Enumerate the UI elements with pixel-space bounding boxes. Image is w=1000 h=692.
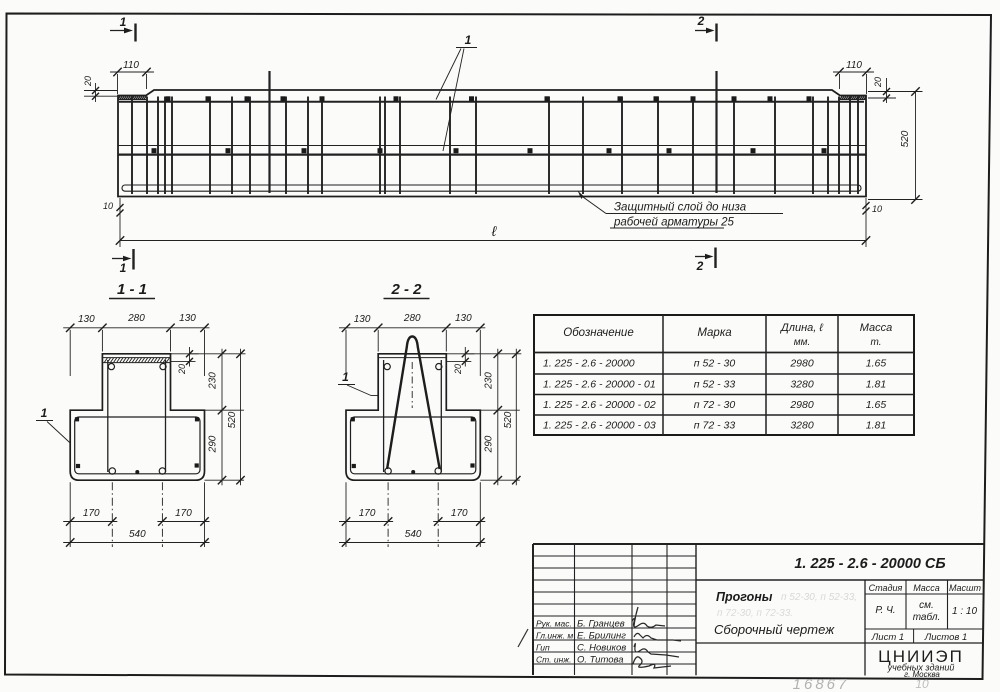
svg-text:16867: 16867 (793, 676, 850, 692)
svg-text:Ст. инж.: Ст. инж. (536, 655, 571, 665)
svg-text:130: 130 (179, 313, 196, 324)
svg-text:290: 290 (208, 435, 219, 453)
svg-text:1. 225 - 2.6 - 20000 - 02: 1. 225 - 2.6 - 20000 - 02 (543, 399, 656, 411)
svg-text:1. 225 - 2.6 - 20000: 1. 225 - 2.6 - 20000 (543, 358, 635, 370)
svg-text:110: 110 (846, 60, 862, 71)
svg-text:Е. Брилинг: Е. Брилинг (577, 631, 626, 642)
svg-text:3280: 3280 (790, 379, 814, 391)
svg-text:1.65: 1.65 (866, 399, 887, 411)
svg-text:10: 10 (103, 201, 113, 211)
svg-text:1.81: 1.81 (866, 379, 886, 391)
svg-text:Гл.инж. м: Гл.инж. м (536, 631, 573, 641)
svg-text:п 52 - 33: п 52 - 33 (694, 379, 736, 391)
svg-text:Сборочный чертеж: Сборочный чертеж (714, 622, 835, 637)
svg-text:170: 170 (359, 508, 376, 519)
svg-text:Листов 1: Листов 1 (924, 632, 968, 643)
svg-text:1: 1 (465, 33, 472, 47)
svg-text:2980: 2980 (789, 399, 814, 411)
svg-text:п 52-30, п 52-33,: п 52-30, п 52-33, (781, 592, 857, 603)
svg-text:20: 20 (177, 364, 187, 375)
svg-text:п 72 - 33: п 72 - 33 (694, 420, 736, 432)
svg-text:2: 2 (696, 259, 704, 273)
svg-text:170: 170 (451, 508, 468, 519)
svg-text:520: 520 (503, 411, 514, 428)
svg-text:т.: т. (871, 337, 882, 348)
svg-text:п 52 - 30: п 52 - 30 (694, 358, 736, 370)
svg-text:см.: см. (919, 600, 934, 611)
svg-text:Прогоны: Прогоны (716, 590, 773, 604)
svg-text:п 72 - 30: п 72 - 30 (694, 399, 736, 411)
svg-text:1: 1 (120, 261, 127, 275)
svg-text:табл.: табл. (913, 611, 941, 623)
svg-text:1.81: 1.81 (866, 420, 886, 432)
svg-text:20: 20 (453, 364, 463, 375)
svg-text:мм.: мм. (794, 337, 811, 348)
svg-text:130: 130 (78, 314, 95, 325)
svg-text:1 : 10: 1 : 10 (952, 606, 977, 617)
svg-text:110: 110 (123, 60, 139, 71)
svg-text:Масшт: Масшт (949, 583, 982, 593)
svg-text:Б. Гранцев: Б. Гранцев (577, 619, 625, 630)
svg-text:230: 230 (208, 372, 219, 390)
svg-text:10: 10 (872, 204, 882, 214)
svg-text:1.65: 1.65 (866, 358, 887, 370)
svg-text:2980: 2980 (789, 358, 814, 370)
svg-text:1 - 1: 1 - 1 (117, 281, 147, 298)
svg-text:520: 520 (900, 130, 911, 147)
svg-text:Лист 1: Лист 1 (871, 632, 904, 643)
svg-text:130: 130 (455, 313, 472, 324)
svg-text:280: 280 (403, 313, 421, 324)
svg-text:280: 280 (127, 313, 145, 324)
svg-text:1. 225 - 2.6 - 20000 - 01: 1. 225 - 2.6 - 20000 - 01 (543, 379, 656, 391)
svg-text:Гип: Гип (536, 643, 550, 653)
svg-text:1: 1 (41, 406, 48, 420)
svg-text:230: 230 (483, 372, 494, 390)
svg-text:20: 20 (873, 77, 883, 88)
svg-text:Р. Ч.: Р. Ч. (875, 605, 895, 616)
svg-text:Стадия: Стадия (869, 583, 903, 593)
svg-text:540: 540 (129, 529, 146, 540)
svg-text:1: 1 (120, 15, 127, 29)
svg-text:2: 2 (697, 14, 705, 28)
svg-text:130: 130 (354, 314, 371, 325)
svg-text:1. 225 - 2.6 - 20000 СБ: 1. 225 - 2.6 - 20000 СБ (794, 556, 945, 572)
svg-text:290: 290 (483, 435, 494, 453)
svg-text:2 - 2: 2 - 2 (390, 281, 422, 298)
svg-text:170: 170 (83, 508, 100, 519)
svg-text:20: 20 (83, 76, 93, 87)
svg-text:Марка: Марка (697, 327, 731, 339)
svg-text:Рук. мас.: Рук. мас. (536, 619, 572, 629)
svg-text:10: 10 (915, 677, 929, 691)
svg-text:1: 1 (342, 370, 349, 384)
svg-text:ℓ: ℓ (491, 223, 497, 239)
svg-text:520: 520 (227, 411, 238, 428)
svg-text:Масса: Масса (913, 583, 940, 593)
svg-text:170: 170 (175, 508, 192, 519)
svg-text:О. Титова: О. Титова (577, 655, 624, 666)
svg-text:Длина, ℓ: Длина, ℓ (779, 322, 823, 334)
svg-text:3280: 3280 (790, 420, 814, 432)
svg-text:Масса: Масса (860, 322, 893, 334)
svg-text:Обозначение: Обозначение (563, 327, 633, 339)
svg-text:1. 225 - 2.6 - 20000 - 03: 1. 225 - 2.6 - 20000 - 03 (543, 420, 656, 432)
svg-text:540: 540 (405, 529, 422, 540)
svg-text:Защитный слой до низа: Защитный слой до низа (614, 202, 746, 214)
svg-text:рабочей арматуры 25: рабочей арматуры 25 (613, 217, 735, 229)
svg-text:п 72-30, п 72-33.: п 72-30, п 72-33. (717, 608, 793, 619)
svg-text:С. Новиков: С. Новиков (577, 643, 626, 654)
